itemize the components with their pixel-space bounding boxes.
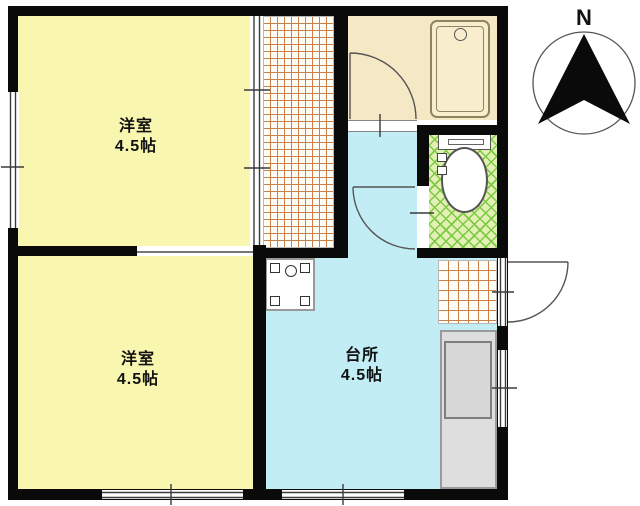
wall-corridor-bottom — [253, 248, 348, 258]
sink-corner — [300, 296, 310, 306]
toilet-control-button — [437, 166, 447, 175]
sink-corner — [300, 263, 310, 273]
room-size: 4.5帖 — [302, 366, 422, 386]
sink-corner — [270, 296, 280, 306]
window-bottom-kitchen — [282, 490, 404, 499]
kitchen-counter-sink — [444, 341, 492, 419]
outer-wall-bottom — [8, 489, 508, 500]
toilet-control-button — [437, 153, 447, 162]
room-name: 洋室 — [68, 350, 208, 370]
hallway-floor — [348, 132, 417, 258]
entrance-genkan-tile — [438, 260, 497, 324]
bathroom-threshold — [348, 120, 417, 132]
bedroom-bottom-label: 洋室 4.5帖 — [68, 350, 208, 390]
north-label: N — [568, 5, 600, 31]
front-door-opening — [498, 258, 507, 326]
sliding-partition — [250, 16, 263, 245]
kitchen-label: 台所 4.5帖 — [302, 346, 422, 386]
toilet-bowl — [441, 147, 488, 213]
bedroom-top-label: 洋室 4.5帖 — [66, 117, 206, 157]
room-name: 洋室 — [66, 117, 206, 137]
wall-between-bedrooms — [16, 246, 137, 256]
wall-toilet-left — [417, 130, 429, 186]
bathtub — [430, 20, 490, 118]
sink-faucet — [285, 265, 297, 277]
outer-wall-top — [8, 6, 508, 16]
wall-entrance-top — [417, 248, 508, 258]
window-bottom-bedroom — [102, 490, 243, 499]
floor-plan: 洋室 4.5帖 洋室 4.5帖 台所 4.5帖 N — [0, 0, 640, 506]
room-name: 台所 — [302, 346, 422, 366]
tiled-corridor-floor — [263, 16, 334, 248]
room-size: 4.5帖 — [66, 137, 206, 157]
wall-bathroom-bottom — [417, 125, 508, 135]
sink-corner — [270, 263, 280, 273]
wall-corridor-bathroom — [334, 6, 348, 258]
toilet-tank-lid — [448, 139, 484, 145]
window-right — [498, 350, 507, 427]
room-size: 4.5帖 — [68, 370, 208, 390]
kitchen-counter — [440, 330, 497, 489]
window-left — [7, 92, 19, 228]
bedrooms-opening-line — [137, 251, 253, 253]
toilet-door-opening — [417, 186, 429, 248]
bathtub-drain — [454, 28, 467, 41]
wall-bedrooms-kitchen — [253, 245, 266, 489]
kitchen-sink-unit — [265, 258, 315, 311]
